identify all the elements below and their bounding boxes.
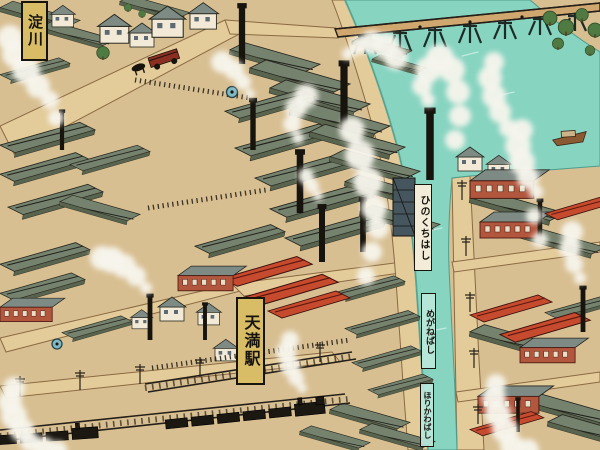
tram-stop-marker	[227, 87, 238, 98]
temma-station-label: 天満駅	[236, 297, 265, 385]
canal-trestle-structure	[393, 178, 415, 236]
tram-stop-marker	[52, 339, 62, 349]
meganebashi-bridge-label: めがねばし	[421, 293, 436, 369]
panorama-map: 淀川 天満駅 ひのくちはし めがねばし ほりかわばし	[0, 0, 600, 450]
map-artwork	[0, 0, 600, 450]
yodogawa-river-label: 淀川	[21, 1, 48, 61]
hinokuchibashi-bridge-label: ひのくちはし	[414, 184, 432, 271]
horikawabashi-bridge-label: ほりかわばし	[420, 383, 434, 447]
